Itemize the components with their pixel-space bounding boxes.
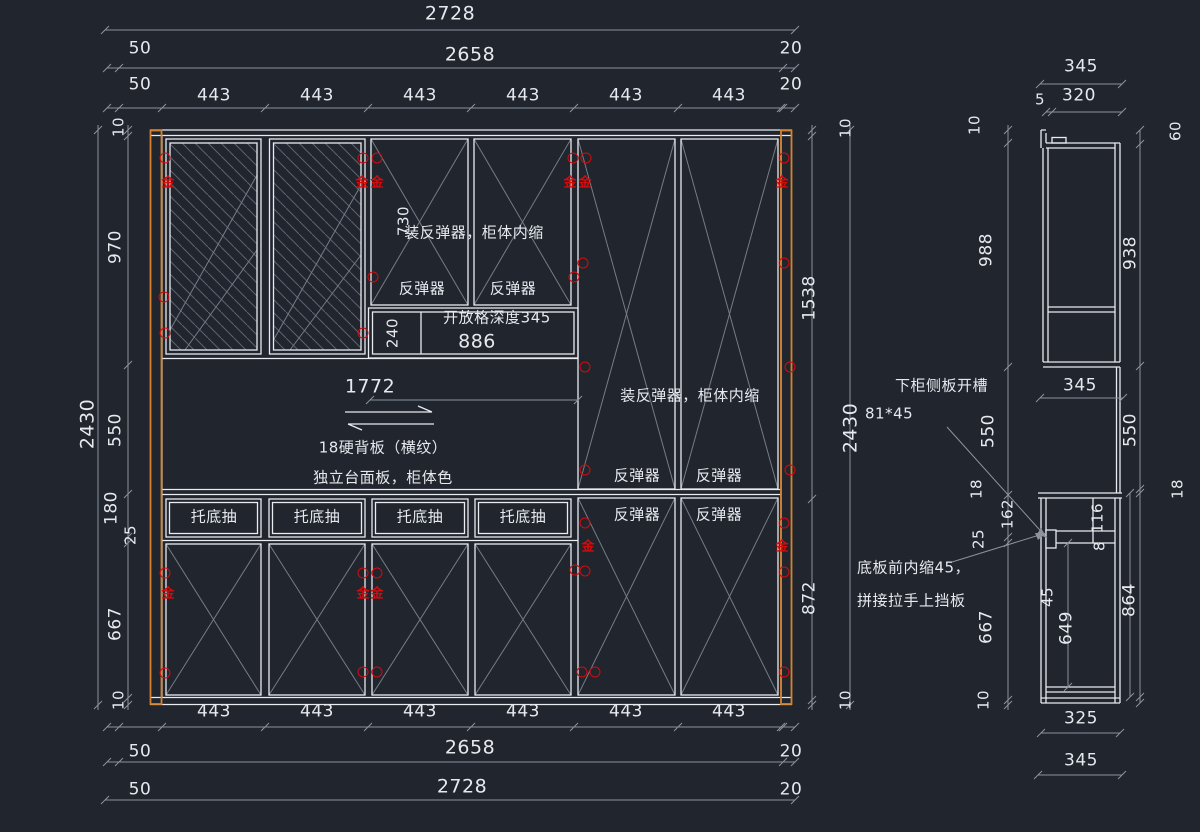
side-section-lines bbox=[1038, 130, 1122, 703]
door-diagonal-marks bbox=[166, 139, 778, 695]
drawing-canvas bbox=[0, 0, 1200, 832]
cad-drawing-stage: 2728502658205044344344344344344320443443… bbox=[0, 0, 1200, 832]
